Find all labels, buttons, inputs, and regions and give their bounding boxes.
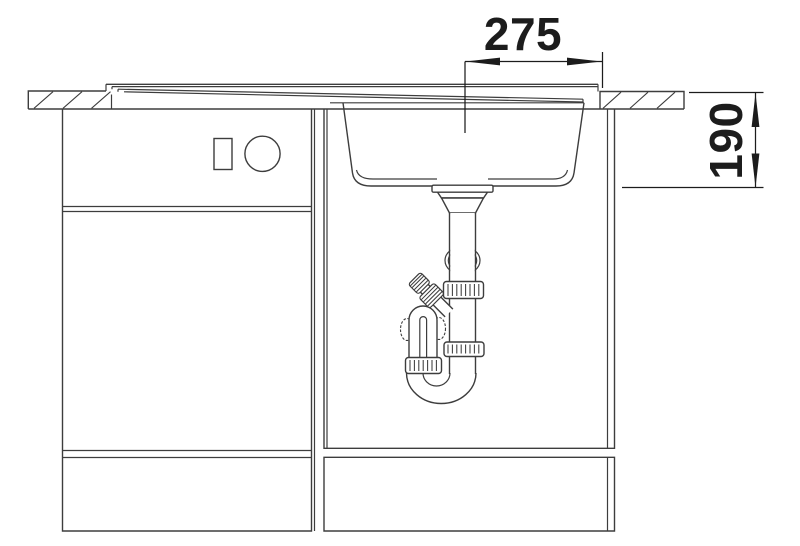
- panel-square-symbol: [214, 139, 232, 170]
- sink-rim: [106, 84, 598, 103]
- arrow-left-icon: [466, 58, 501, 66]
- dimension-depth: 190: [622, 93, 764, 188]
- bowl-left-wall: [343, 103, 353, 173]
- drain-flange: [432, 185, 493, 213]
- arrow-up-icon: [752, 93, 760, 127]
- union-nut-lower-left: [406, 358, 442, 374]
- countertop: [28, 91, 684, 109]
- dimension-width-label: 275: [484, 8, 562, 60]
- sink-section-drawing: 275 190: [0, 0, 800, 546]
- countertop-hatch-right: [600, 92, 684, 110]
- cabinet-right-plinth: [324, 457, 615, 531]
- drainboard-slope-line: [118, 89, 583, 99]
- siphon-trap: [401, 213, 485, 403]
- countertop-hatch-left: [28, 91, 111, 109]
- cabinet-left-outline: [63, 109, 312, 531]
- dimension-depth-label: 190: [700, 101, 752, 179]
- cabinet-left-top-divider: [63, 207, 312, 212]
- panel-circle-symbol: [245, 136, 280, 171]
- arrow-down-icon: [752, 154, 760, 188]
- technical-drawing-canvas: 275 190: [0, 0, 800, 546]
- union-nut-middle: [444, 342, 484, 357]
- bowl-right-wall: [574, 103, 584, 173]
- bowl-inner-bottom: [357, 170, 568, 179]
- cabinet-left: [63, 109, 315, 531]
- union-nut-upper: [444, 282, 484, 299]
- arrow-right-icon: [567, 58, 602, 66]
- cabinet-left-plinth-divider: [63, 451, 312, 458]
- sink-bowl: [343, 103, 584, 186]
- u-bend: [407, 373, 477, 403]
